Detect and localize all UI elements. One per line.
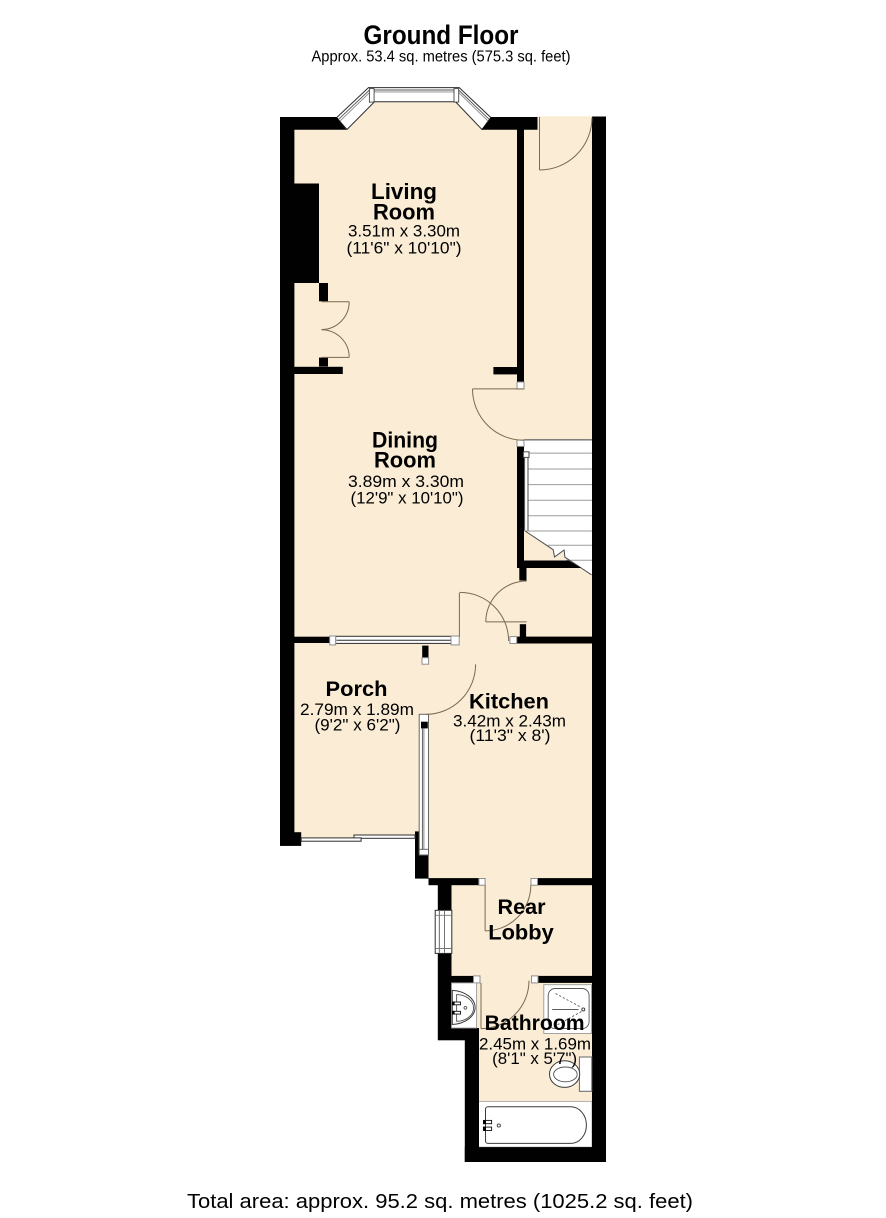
svg-text:3.51m x 3.30m: 3.51m x 3.30m [348,223,460,241]
svg-text:Room: Room [374,448,436,473]
svg-text:(8'1" x 5'7"): (8'1" x 5'7") [492,1050,577,1068]
svg-text:Ground Floor: Ground Floor [364,20,519,50]
svg-text:Approx. 53.4 sq. metres (575.3: Approx. 53.4 sq. metres (575.3 sq. feet) [312,49,571,66]
svg-text:3.89m x 3.30m: 3.89m x 3.30m [348,473,464,491]
svg-text:Lobby: Lobby [488,922,554,945]
svg-text:(11'3" x 8'): (11'3" x 8') [470,727,551,745]
svg-text:(12'9" x 10'10"): (12'9" x 10'10") [351,490,464,508]
svg-text:Rear: Rear [498,896,546,919]
svg-text:(9'2" x 6'2"): (9'2" x 6'2") [315,717,401,735]
svg-text:Bathroom: Bathroom [485,1012,585,1035]
svg-text:Room: Room [373,200,435,225]
svg-text:Total area: approx. 95.2 sq. m: Total area: approx. 95.2 sq. metres (102… [187,1190,693,1213]
svg-text:(11'6" x 10'10"): (11'6" x 10'10") [347,240,462,258]
svg-text:Porch: Porch [326,678,388,701]
svg-text:Kitchen: Kitchen [469,691,549,714]
